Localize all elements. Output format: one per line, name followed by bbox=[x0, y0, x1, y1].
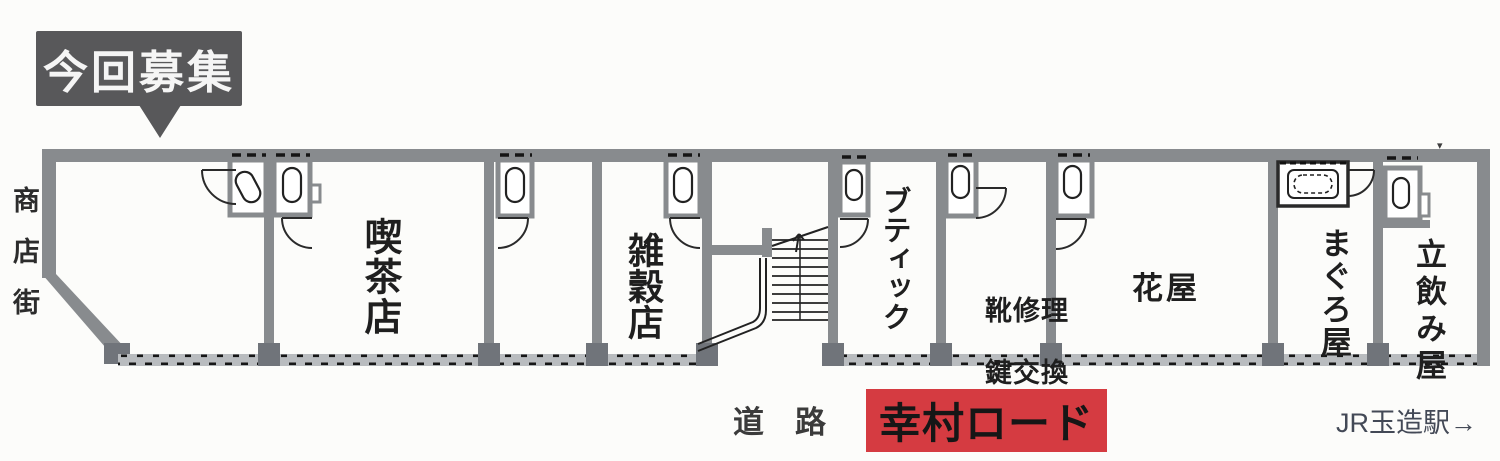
unit-label-flower-shop: 花屋 bbox=[1132, 263, 1200, 308]
toilet-rooms bbox=[230, 160, 1420, 220]
shoe-repair-line2: 鍵交換 bbox=[985, 358, 1069, 388]
callout-tail-arrow bbox=[139, 105, 181, 138]
yukimura-road-sign-label: 幸村ロード bbox=[879, 390, 1094, 451]
shoe-repair-line1: 靴修理 bbox=[985, 296, 1069, 326]
triangle-marker: ▾ bbox=[1437, 139, 1443, 152]
unit-label-coffee-shop: 喫茶店 bbox=[352, 217, 407, 337]
unit-label-boutique: ブティック bbox=[873, 186, 915, 331]
floorplan-canvas: 今回募集 商店街 喫茶店 雑穀店 ブティック 靴修理 鍵交換 花屋 まぐろ屋 立… bbox=[0, 0, 1500, 461]
bath-room bbox=[1278, 162, 1348, 206]
recruiting-callout: 今回募集 bbox=[36, 31, 242, 106]
road-label: 道 路 bbox=[733, 397, 826, 442]
recruiting-callout-label: 今回募集 bbox=[43, 36, 235, 101]
toilet-icon bbox=[233, 166, 1409, 208]
station-direction-label: JR玉造駅→ bbox=[1336, 401, 1477, 440]
unit-label-grain-shop: 雑穀店 bbox=[617, 232, 669, 340]
yukimura-road-sign: 幸村ロード bbox=[866, 389, 1107, 452]
unit-label-tuna-shop: まぐろ屋 bbox=[1311, 227, 1356, 359]
unit-label-standing-bar: 立飲み屋 bbox=[1406, 238, 1451, 386]
shopping-street-label: 商店街 bbox=[5, 186, 44, 339]
